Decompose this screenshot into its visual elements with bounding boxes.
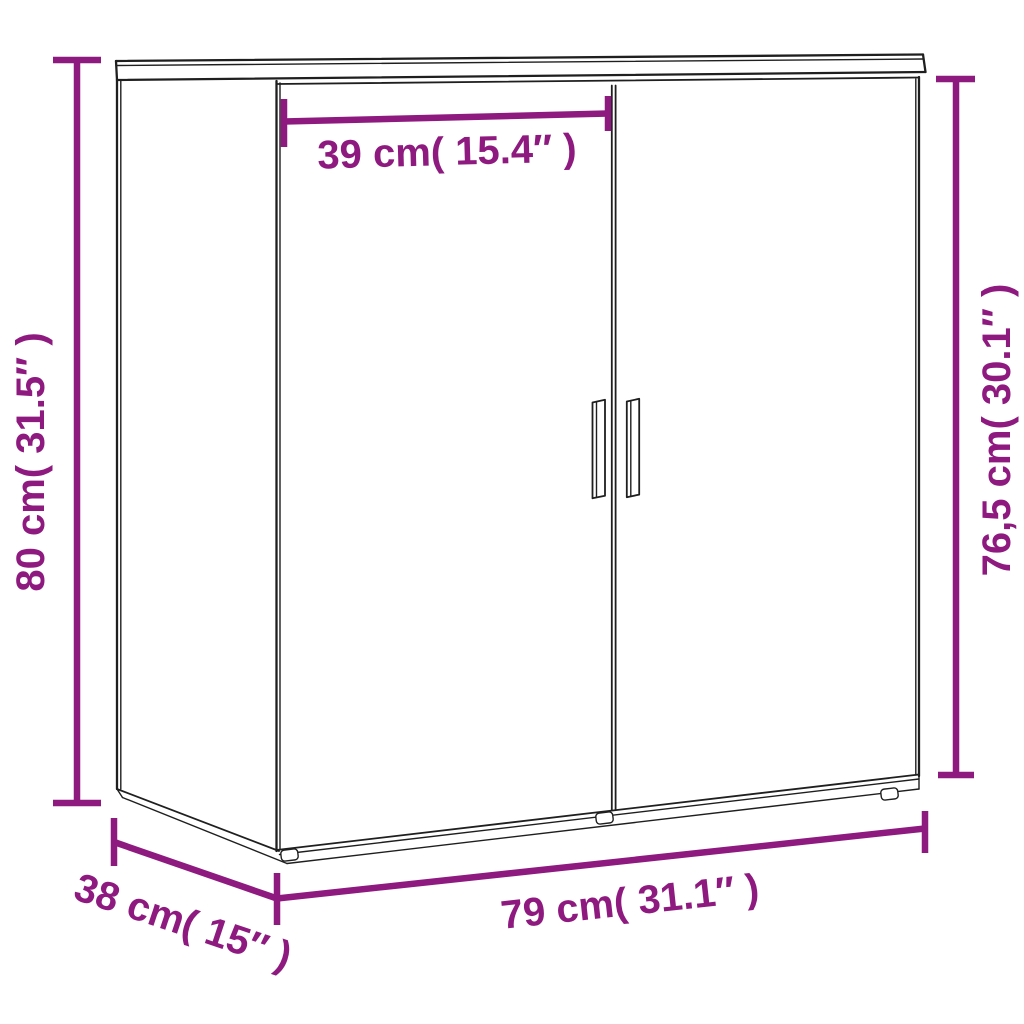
dimension-door-width: 39 cm( 15.4″ ): [284, 96, 608, 178]
cabinet-feet: [280, 788, 898, 862]
side-panel-bottom-edge: [117, 789, 279, 851]
front-right-foot: [880, 788, 898, 801]
dimension-overall-width: 79 cm( 31.1″ ): [277, 811, 925, 938]
plinth-front-bottom-edge: [287, 789, 919, 864]
dimension-overall-height: 80 cm( 31.5″ ): [9, 60, 101, 803]
front-left-foot: [280, 849, 298, 862]
width-dimension-label: 79 cm( 31.1″ ): [499, 866, 762, 938]
cabinet-left-side-panel: [117, 80, 287, 864]
door-width-dimension-label: 39 cm( 15.4″ ): [317, 126, 577, 177]
dimension-depth: 38 cm( 15″ ): [69, 818, 297, 979]
product-dimension-diagram: 80 cm( 31.5″ ) 39 cm( 15.4″ ) 76,5 cm( 3…: [0, 0, 1024, 1024]
front-height-dimension-label: 76,5 cm( 30.1″ ): [975, 284, 1019, 577]
depth-dimension-label: 38 cm( 15″ ): [69, 865, 297, 978]
right-door-handle: [627, 399, 639, 497]
cabinet: [116, 55, 926, 864]
sideboard-line-drawing: 80 cm( 31.5″ ) 39 cm( 15.4″ ) 76,5 cm( 3…: [0, 0, 1024, 1024]
left-door-handle: [593, 400, 606, 499]
dimension-front-height: 76,5 cm( 30.1″ ): [936, 79, 1019, 775]
cabinet-top-panel: [116, 55, 926, 81]
front-center-foot: [595, 812, 613, 825]
door-width-dimension-line: [284, 114, 608, 122]
top-panel-right-edge: [923, 55, 926, 73]
top-panel-left-edge: [116, 61, 117, 80]
height-dimension-label: 80 cm( 31.5″ ): [9, 332, 53, 591]
